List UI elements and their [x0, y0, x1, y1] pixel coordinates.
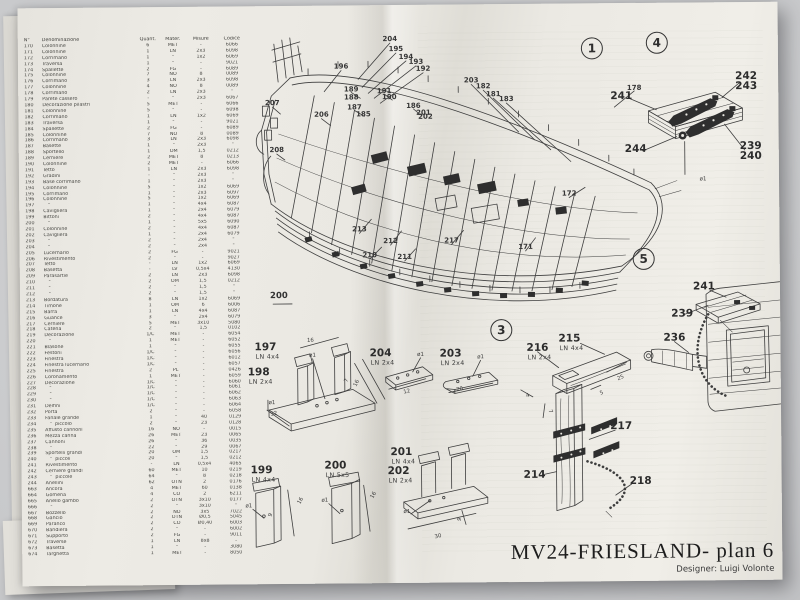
- ship-callout: 189: [344, 85, 359, 93]
- detail-number: 216: [526, 342, 548, 354]
- ship-callout: 210: [362, 251, 377, 259]
- ship-callout: 171: [518, 243, 533, 251]
- detail-number: 204: [370, 347, 392, 359]
- dimension-label: ø1: [417, 352, 424, 358]
- dimension-label: ø1: [269, 400, 276, 406]
- group-label-200: 200: [270, 291, 288, 301]
- ship-callout: 195: [389, 45, 404, 53]
- detail-number: 202: [388, 465, 410, 477]
- table-cell: 674: [28, 552, 46, 558]
- detail-spec: LN 2x4: [249, 379, 273, 386]
- detail-203: [443, 372, 498, 393]
- dimension-label: ø1: [309, 353, 316, 359]
- detail-number: 217: [610, 420, 632, 432]
- detail-number: 203: [440, 347, 462, 359]
- ship-callout: 213: [352, 225, 367, 233]
- detail-197-198: [268, 343, 375, 431]
- ship-callout: 188: [344, 93, 359, 101]
- detail-spec: LN 4x4: [560, 345, 584, 352]
- plan-sheet: N° Denominazione Quant. Mater. Misure Co…: [17, 2, 782, 587]
- ship-callout: 212: [383, 237, 398, 245]
- detail-number: 215: [558, 332, 580, 344]
- plan-title: MV24-FRIESLAND- plan 6: [442, 538, 774, 566]
- detail-number: 199: [251, 464, 273, 476]
- dimension-label: ø1: [700, 176, 707, 182]
- table-cell: -: [190, 550, 220, 556]
- detail-number: 200: [324, 459, 346, 471]
- detail-201-202: [403, 443, 488, 519]
- ship-callout: 172: [562, 189, 577, 197]
- section-marker-3: 3: [490, 319, 512, 341]
- detail-spec: LN 5x5: [326, 472, 350, 479]
- table-cell: 1: [140, 551, 164, 557]
- photo-backdrop: N° Denominazione Quant. Mater. Misure Co…: [0, 0, 800, 600]
- ship-callout: 192: [416, 65, 431, 73]
- detail-spec: LN 2x4: [528, 354, 552, 361]
- detail-number: 241: [610, 90, 632, 102]
- dimension-label: ø1: [404, 509, 411, 515]
- ship-callout: 183: [499, 95, 514, 103]
- table-cell: Targhetta: [46, 551, 140, 558]
- designer-credit: Designer: Luigi Volonte: [582, 564, 774, 576]
- ship-callout: 182: [476, 82, 491, 90]
- section-marker-5: 5: [633, 248, 655, 270]
- detail-spec: LN 2x4: [371, 360, 395, 367]
- detail-number: 243: [735, 80, 757, 92]
- ship-callout: 211: [397, 253, 412, 261]
- ship-callout: 190: [382, 93, 397, 101]
- detail-spec: LN 4x4: [256, 354, 280, 361]
- section-marker-4-label: 4: [653, 36, 661, 50]
- detail-open-port: [643, 281, 782, 412]
- detail-number: 241: [693, 280, 715, 292]
- section-marker-1-label: 1: [588, 41, 596, 55]
- detail-number: 218: [630, 475, 652, 487]
- ship-callout: 204: [382, 35, 397, 43]
- section-marker-3-label: 3: [497, 323, 505, 337]
- ship-callout: 185: [356, 110, 371, 118]
- detail-number: 240: [740, 150, 762, 162]
- detail-number: 236: [663, 332, 685, 344]
- ship-callout: 196: [334, 62, 349, 70]
- detail-number: 197: [254, 341, 276, 353]
- table-cell: 8050: [220, 550, 252, 556]
- detail-number: 244: [625, 143, 647, 155]
- ship-callout: 207: [265, 99, 280, 107]
- parts-table-body: 170Colonnine6MET-6066171Colonnine1LN2x36…: [24, 42, 252, 558]
- ship-callout: 202: [418, 113, 433, 121]
- detail-spec: LN 2x4: [441, 360, 465, 367]
- dimension-label: ø1: [321, 498, 328, 504]
- dimension-label: ø1: [245, 503, 252, 509]
- parts-table: N° Denominazione Quant. Mater. Misure Co…: [24, 36, 253, 558]
- table-cell: MET: [164, 551, 190, 557]
- dimension-label: ø1: [477, 354, 484, 360]
- ship-callout: 208: [269, 146, 284, 154]
- detail-number: 198: [248, 366, 270, 378]
- detail-number: 214: [524, 469, 546, 481]
- ship-callout: 206: [314, 111, 329, 119]
- detail-number: 201: [390, 446, 412, 458]
- section-marker-4: 4: [646, 32, 668, 54]
- detail-spec: LN 4x4: [252, 477, 276, 484]
- section-marker-5-label: 5: [639, 252, 647, 266]
- section-marker-1: 1: [581, 37, 603, 59]
- ship-drawing: [255, 35, 682, 304]
- dimension-label: 16: [307, 338, 314, 344]
- detail-gunport-lid: [648, 92, 742, 140]
- detail-number: 239: [671, 307, 693, 319]
- detail-spec: LN 2x4: [389, 477, 413, 484]
- ship-callout: 217: [444, 236, 459, 244]
